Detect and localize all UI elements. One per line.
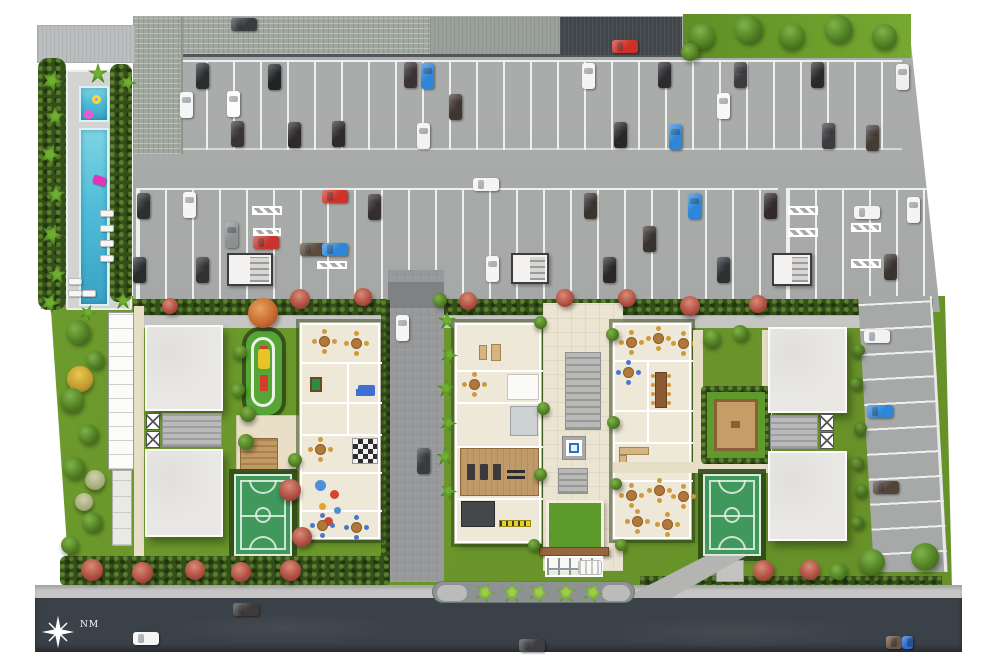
tower-1-roof-north [145, 325, 223, 411]
banquet-chairs [651, 374, 655, 378]
playground-equipment [258, 349, 270, 369]
no-parking-hatch [788, 206, 818, 215]
sofa [358, 385, 375, 396]
wall [457, 370, 543, 372]
stair-core [227, 253, 273, 286]
kids-pool [79, 86, 109, 122]
parking-stripes [786, 188, 932, 305]
playground-track [251, 337, 275, 407]
water-feature [562, 436, 586, 460]
garden-path-west [134, 306, 144, 568]
no-parking-hatch [253, 228, 281, 236]
tower-2-stair-core [770, 415, 818, 449]
median-pad [602, 585, 630, 601]
wall [615, 410, 693, 412]
tower-1-stair-core [162, 413, 222, 447]
parking-stripes [136, 188, 778, 305]
kids-room-cushions [315, 480, 326, 491]
table-with-chairs [470, 380, 479, 389]
hedge-street-west [60, 556, 390, 586]
amenity-building-center [455, 323, 541, 543]
pergola-deck [240, 438, 278, 470]
games-floor [352, 438, 378, 464]
stair-core [772, 253, 812, 286]
table-with-chairs [654, 334, 663, 343]
table-with-chairs [316, 445, 325, 454]
site-plan: NM [0, 0, 1000, 660]
median-pad [437, 585, 467, 601]
table-with-chairs [627, 338, 636, 347]
table-with-chairs [352, 523, 361, 532]
hedge-pool-east [110, 64, 132, 302]
covered-parking-roof-column [133, 17, 183, 154]
table-with-chairs [320, 337, 329, 346]
parking-ramp [560, 17, 682, 55]
banquet-table [655, 372, 667, 408]
table-with-chairs [655, 486, 664, 495]
entrance-lawn-square [546, 500, 604, 550]
no-parking-hatch [851, 259, 881, 268]
sports-court-east [703, 474, 761, 556]
wall [302, 472, 382, 474]
elevator-shaft [820, 414, 834, 431]
pool-float-yellow [92, 95, 101, 104]
patio [236, 415, 300, 471]
no-parking-hatch [851, 223, 881, 232]
plaza-stairs-lower [558, 468, 588, 494]
wall [302, 402, 382, 404]
amenity-building-west [300, 323, 380, 539]
entrance-canopy-beam [539, 547, 609, 556]
entrance-vehicle [578, 560, 602, 575]
water-feature-jet [571, 445, 577, 451]
compass-label: NM [80, 620, 99, 630]
zen-garden-table [731, 421, 740, 428]
wall [647, 360, 649, 442]
compass: NM [40, 614, 110, 656]
internal-driveway [388, 270, 444, 582]
table-with-chairs [624, 368, 633, 377]
wall [457, 402, 543, 404]
table-with-chairs [352, 339, 361, 348]
gym-equipment [467, 464, 475, 480]
no-parking-hatch [788, 228, 818, 237]
driveway-hedge [381, 300, 390, 572]
loungers [479, 345, 487, 360]
room [507, 374, 539, 400]
table-with-chairs [633, 517, 642, 526]
no-parking-hatch [252, 206, 282, 215]
lawn-strip-top [683, 14, 911, 58]
service-building-annex [112, 470, 132, 546]
table-with-chairs [318, 521, 327, 530]
table-with-chairs [679, 492, 688, 501]
no-parking-hatch [317, 261, 347, 269]
covered-parking-roof-mid [430, 17, 562, 54]
playground [246, 331, 282, 415]
pool-float-pink [84, 110, 93, 119]
service-building [108, 312, 134, 470]
wall [615, 480, 693, 482]
wall [302, 510, 382, 512]
driveway-ramp [388, 282, 444, 308]
parking-stripes [150, 60, 902, 150]
street [35, 598, 962, 652]
elevator-shaft [146, 413, 160, 430]
court-center-circle [724, 507, 740, 523]
media-room [461, 501, 495, 527]
tower-2-roof-south [768, 451, 847, 541]
wall [302, 434, 382, 436]
tower-1-roof-south [145, 449, 223, 537]
amenity-building-east [613, 323, 691, 539]
plaza-stairs [565, 352, 601, 430]
table-with-chairs [679, 339, 688, 348]
tower-2-roof-north [768, 327, 847, 413]
table-with-chairs [663, 520, 672, 529]
stair-core [511, 253, 549, 284]
wall [615, 360, 693, 362]
utility-room [510, 406, 538, 436]
compass-star-icon [40, 614, 76, 650]
court-center-circle [255, 507, 271, 523]
billiards-table [310, 377, 322, 392]
sports-court-west [234, 474, 292, 556]
street-median [432, 581, 635, 603]
table-with-chairs [627, 491, 636, 500]
lap-pool [79, 128, 109, 306]
elevator-shaft [820, 432, 834, 449]
kitchen-counter [619, 447, 649, 455]
zen-garden [701, 386, 771, 464]
hedge-pool-west [38, 58, 66, 310]
wall [615, 442, 693, 444]
wall [457, 498, 543, 500]
elevator-shaft [146, 431, 160, 448]
wall [347, 362, 349, 434]
wall [302, 362, 382, 364]
yellow-bench [499, 520, 531, 527]
gym-equipment [507, 470, 525, 473]
